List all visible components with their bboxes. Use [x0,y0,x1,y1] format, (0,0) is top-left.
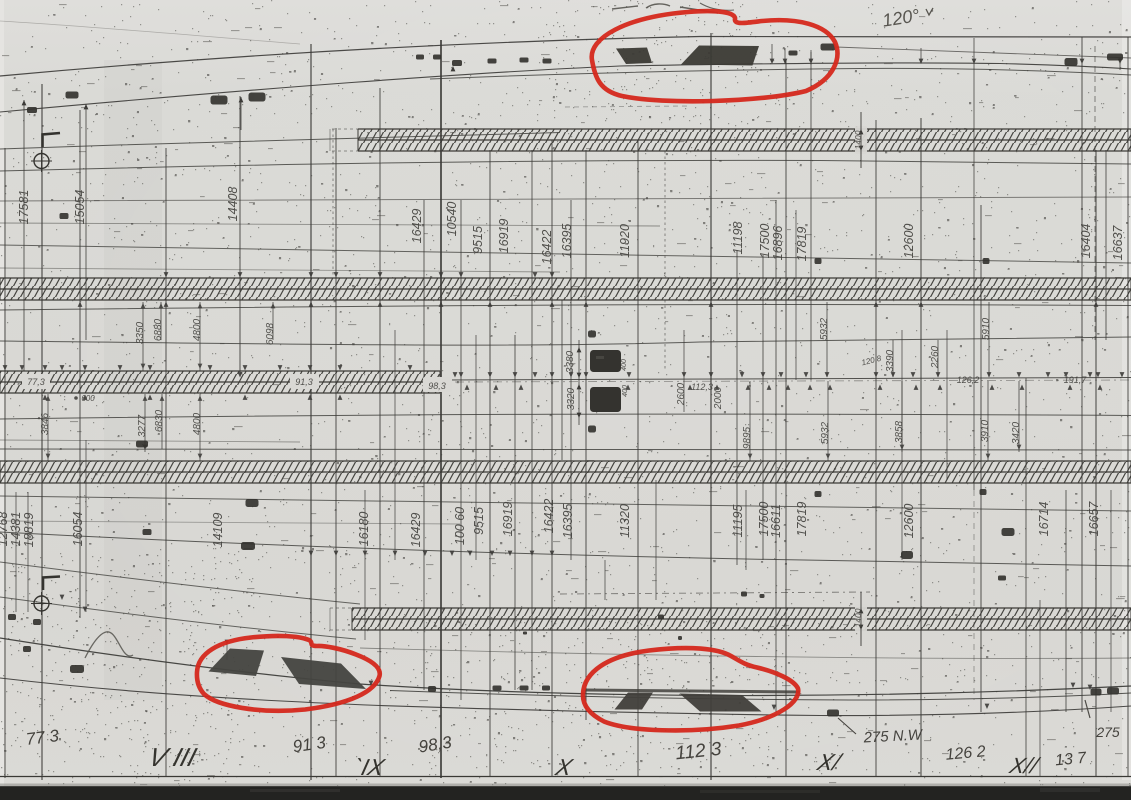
svg-text:16429: 16429 [409,513,423,548]
svg-text:16919: 16919 [497,219,511,254]
svg-text:275: 275 [1095,724,1120,740]
svg-text:16657: 16657 [1087,501,1101,537]
svg-text:15054: 15054 [73,190,87,225]
svg-text:16404: 16404 [1079,224,1093,259]
svg-text:11198: 11198 [731,222,745,255]
svg-text:4800: 4800 [192,412,203,435]
svg-text:3858: 3858 [894,420,905,443]
svg-text:600: 600 [81,394,95,403]
svg-text:13 7: 13 7 [1054,750,1088,770]
svg-text:16395: 16395 [560,224,574,259]
svg-text:16422: 16422 [542,499,556,534]
svg-text:400: 400 [622,385,629,397]
svg-text:17581: 17581 [17,190,31,225]
svg-text:17819: 17819 [795,227,809,262]
svg-text:2000: 2000 [713,386,724,410]
svg-text:10540: 10540 [445,202,459,237]
svg-text:2260: 2260 [930,345,941,369]
svg-text:6880: 6880 [153,318,164,341]
svg-text:11920: 11920 [618,224,632,258]
svg-text:3910: 3910 [980,419,991,442]
svg-text:16054: 16054 [71,512,85,547]
svg-text:18819: 18819 [22,513,36,548]
svg-text:6098: 6098 [265,322,276,345]
svg-text:3320: 3320 [566,387,577,410]
svg-text:16422: 16422 [540,230,554,265]
svg-text:11195: 11195 [731,505,745,538]
svg-text:11320: 11320 [618,504,632,538]
svg-text:3380: 3380 [565,350,576,373]
svg-text:17500: 17500 [758,224,772,259]
svg-text:16714: 16714 [1037,502,1051,537]
svg-text:100 60: 100 60 [453,507,467,545]
svg-text:275 N.W: 275 N.W [862,726,924,746]
svg-text:112,3: 112,3 [691,382,713,392]
svg-text:16637: 16637 [1111,225,1125,261]
svg-text:14408: 14408 [226,187,240,222]
svg-text:3390: 3390 [885,349,896,372]
svg-text:2600: 2600 [676,382,687,406]
svg-text:14381: 14381 [9,512,23,547]
svg-text:4800: 4800 [192,318,203,341]
svg-text:5910: 5910 [981,317,992,340]
svg-text:3846: 3846 [40,412,51,435]
svg-text:16896: 16896 [771,226,785,261]
svg-text:5932: 5932 [820,421,831,444]
svg-text:3420: 3420 [1011,421,1022,444]
svg-text:6830: 6830 [154,409,165,432]
svg-text:16919: 16919 [501,502,515,537]
svg-text:126 2: 126 2 [945,743,986,763]
svg-text:16395: 16395 [561,504,575,539]
svg-text:400: 400 [621,359,628,371]
svg-text:191,7: 191,7 [1064,375,1088,385]
svg-text:91,3: 91,3 [295,377,313,387]
svg-text:3277: 3277 [137,414,148,437]
svg-text:17819: 17819 [795,502,809,537]
svg-text:V III: V III [145,742,200,771]
svg-text:5932: 5932 [819,317,830,340]
svg-text:1400: 1400 [853,130,863,149]
svg-text:77 3: 77 3 [25,726,61,749]
svg-text:16429: 16429 [410,209,424,244]
svg-text:126,2: 126,2 [957,375,980,385]
svg-text:77,3: 77,3 [27,377,45,387]
svg-text:9515: 9515 [471,226,485,254]
svg-text:16180: 16180 [357,512,371,547]
svg-text:16611: 16611 [769,504,783,538]
svg-text:1400: 1400 [853,608,863,627]
svg-text:3350: 3350 [135,321,146,344]
svg-text:12600: 12600 [902,224,916,259]
svg-text:9515: 9515 [472,507,486,535]
svg-text:9895: 9895 [742,426,753,449]
svg-text:98,3: 98,3 [428,381,446,391]
svg-text:14109: 14109 [211,513,225,548]
svg-text:12600: 12600 [902,504,916,539]
